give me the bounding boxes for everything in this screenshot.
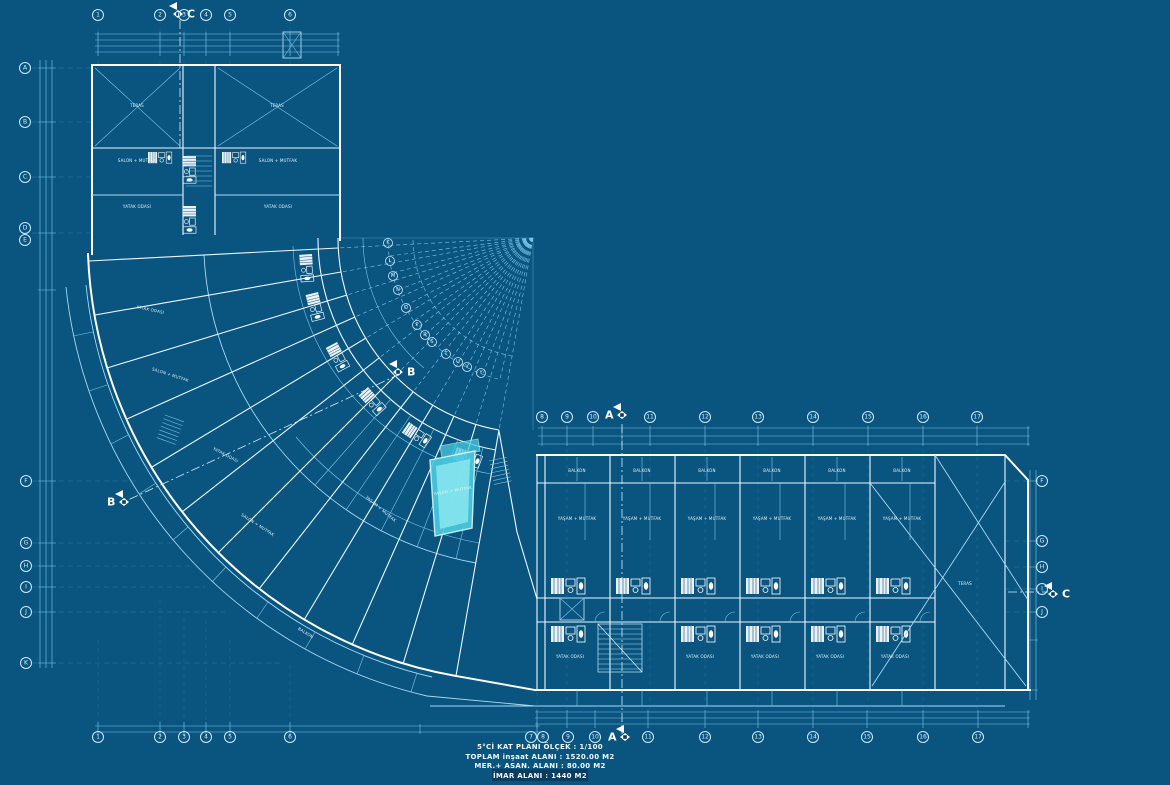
svg-text:6: 6 xyxy=(288,12,292,19)
svg-text:H: H xyxy=(24,563,29,570)
svg-text:11: 11 xyxy=(646,414,654,421)
svg-text:4: 4 xyxy=(204,734,208,741)
floor-plan-drawing: YATAK ODASI SALON + MUTFAK YATAK ODASI S… xyxy=(0,0,1170,785)
svg-text:L: L xyxy=(389,258,392,264)
svg-text:3: 3 xyxy=(182,734,186,741)
section-letter: A xyxy=(608,731,617,744)
svg-text:7: 7 xyxy=(529,734,533,741)
room-label: SALON + MUTFAK xyxy=(259,158,298,163)
svg-text:I: I xyxy=(25,584,27,591)
svg-text:12: 12 xyxy=(701,734,709,741)
room-label: YATAK ODASI xyxy=(685,654,714,659)
room-label: YAŞAM + MUTFAK xyxy=(622,516,662,521)
svg-text:14: 14 xyxy=(809,414,817,421)
svg-text:5: 5 xyxy=(228,12,232,19)
zoning-area: İMAR ALANI : 1440 M2 xyxy=(493,771,587,780)
svg-text:H: H xyxy=(1040,564,1045,571)
svg-text:15: 15 xyxy=(864,414,872,421)
svg-text:10: 10 xyxy=(589,414,597,421)
svg-text:N: N xyxy=(396,287,400,293)
svg-text:9: 9 xyxy=(565,414,569,421)
svg-text:15: 15 xyxy=(863,734,871,741)
svg-text:G: G xyxy=(24,540,29,547)
room-label: TERAS xyxy=(269,103,284,108)
svg-text:17: 17 xyxy=(974,734,982,741)
section-letter: A xyxy=(605,409,614,422)
room-label: YATAK ODASI xyxy=(263,204,292,209)
svg-text:16: 16 xyxy=(919,414,927,421)
room-label: BALKON xyxy=(633,468,650,473)
svg-text:S: S xyxy=(430,339,433,345)
svg-text:J: J xyxy=(1040,609,1043,616)
plan-title: 5°Cİ KAT PLANI ÖLÇEK : 1/100 xyxy=(477,742,603,751)
svg-text:13: 13 xyxy=(754,734,762,741)
svg-text:16: 16 xyxy=(919,734,927,741)
svg-text:D: D xyxy=(23,225,28,232)
svg-text:F: F xyxy=(24,478,28,485)
svg-text:I: I xyxy=(1041,586,1043,593)
room-label: YAŞAM + MUTFAK xyxy=(687,516,727,521)
svg-text:3: 3 xyxy=(182,12,186,19)
room-label: YATAK ODASI xyxy=(555,654,584,659)
total-area: TOPLAM inşaat ALANI : 1520.00 M2 xyxy=(465,753,614,761)
svg-text:14: 14 xyxy=(809,734,817,741)
room-label: BALKON xyxy=(763,468,780,473)
room-label: YAŞAM + MUTFAK xyxy=(882,516,922,521)
room-label: TERAS xyxy=(129,103,144,108)
stair-elevator-area: MER.+ ASAN. ALANI : 80.00 M2 xyxy=(474,762,605,770)
room-label: YATAK ODASI xyxy=(880,654,909,659)
svg-text:17: 17 xyxy=(973,414,981,421)
room-label: YATAK ODASI xyxy=(750,654,779,659)
svg-text:V: V xyxy=(465,364,469,370)
room-label: TERAS xyxy=(957,581,972,586)
svg-text:M: M xyxy=(391,273,395,279)
svg-text:O: O xyxy=(404,305,408,311)
room-label: BALKON xyxy=(568,468,585,473)
svg-text:R: R xyxy=(423,332,427,338)
svg-text:G: G xyxy=(1040,538,1045,545)
section-letter: B xyxy=(407,366,415,379)
svg-text:U: U xyxy=(456,359,460,365)
room-label: BALKON xyxy=(828,468,845,473)
svg-text:8: 8 xyxy=(541,734,545,741)
svg-text:8: 8 xyxy=(540,414,544,421)
svg-text:13: 13 xyxy=(754,414,762,421)
section-letter: B xyxy=(107,496,115,509)
blueprint-background xyxy=(0,0,1170,785)
svg-text:5: 5 xyxy=(228,734,232,741)
svg-text:C: C xyxy=(23,174,27,181)
blueprint-canvas: YATAK ODASI SALON + MUTFAK YATAK ODASI S… xyxy=(0,0,1170,785)
room-label: BALKON xyxy=(893,468,910,473)
svg-text:6: 6 xyxy=(288,734,292,741)
svg-text:J: J xyxy=(24,609,27,616)
room-label: YATAK ODASI xyxy=(815,654,844,659)
svg-text:1: 1 xyxy=(96,12,100,19)
svg-text:12: 12 xyxy=(701,414,709,421)
svg-text:B: B xyxy=(23,119,27,126)
svg-text:10: 10 xyxy=(591,734,599,741)
svg-text:1: 1 xyxy=(96,734,100,741)
room-label: SALON + MUTFAK xyxy=(118,158,157,163)
svg-text:9: 9 xyxy=(566,734,570,741)
svg-text:4: 4 xyxy=(204,12,208,19)
room-label: YAŞAM + MUTFAK xyxy=(817,516,857,521)
room-label: BALKON xyxy=(698,468,715,473)
svg-text:P: P xyxy=(415,322,418,328)
svg-text:2: 2 xyxy=(158,734,162,741)
room-label: YATAK ODASI xyxy=(122,204,151,209)
svg-text:E: E xyxy=(23,237,27,244)
svg-text:11: 11 xyxy=(644,734,652,741)
svg-text:2: 2 xyxy=(158,12,162,19)
svg-text:F: F xyxy=(1040,478,1044,485)
room-label: YAŞAM + MUTFAK xyxy=(752,516,792,521)
section-letter: C xyxy=(1062,588,1070,601)
room-label: YAŞAM + MUTFAK xyxy=(557,516,597,521)
